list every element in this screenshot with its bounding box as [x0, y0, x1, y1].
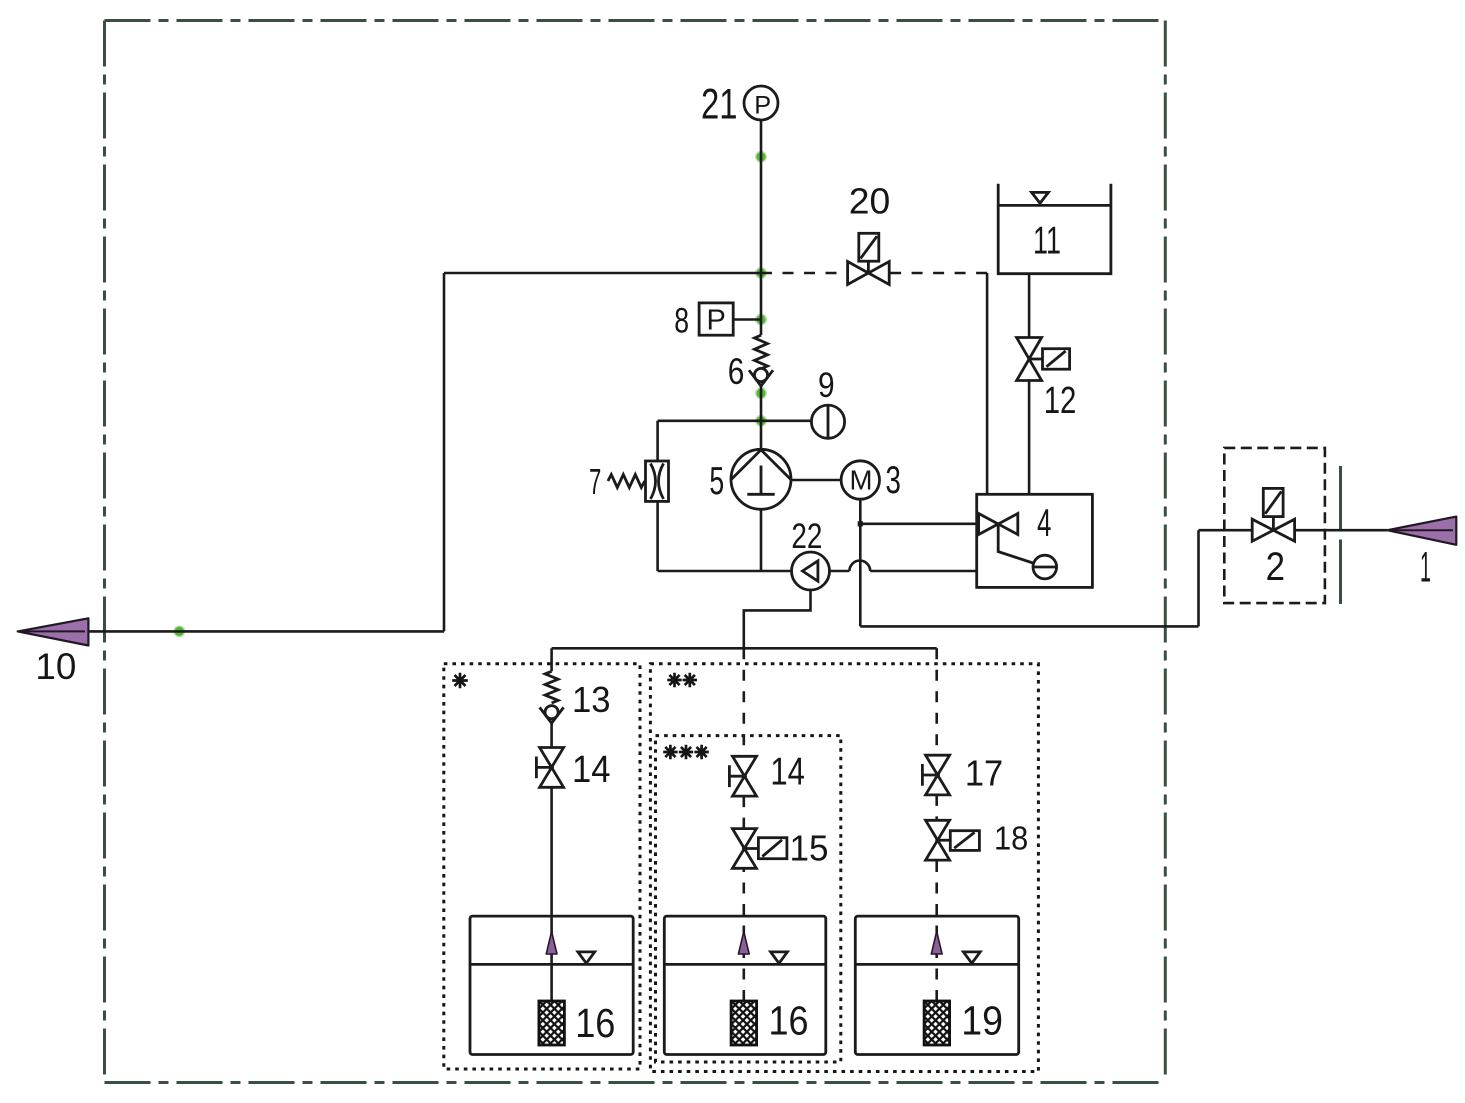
svg-text:19: 19: [961, 997, 1003, 1043]
svg-text:1: 1: [1420, 544, 1431, 591]
svg-text:7: 7: [589, 462, 601, 502]
svg-text:3: 3: [886, 459, 901, 502]
svg-text:16: 16: [769, 997, 809, 1043]
svg-text:15: 15: [790, 829, 829, 869]
svg-text:P: P: [707, 305, 726, 337]
svg-text:5: 5: [709, 460, 724, 503]
svg-text:6: 6: [728, 350, 745, 392]
svg-text:12: 12: [1044, 379, 1077, 421]
svg-text:11: 11: [1033, 220, 1061, 263]
svg-text:16: 16: [575, 1000, 615, 1046]
svg-text:10: 10: [35, 646, 76, 687]
svg-text:22: 22: [791, 516, 822, 556]
svg-text:P: P: [754, 91, 771, 119]
svg-text:2: 2: [1266, 545, 1285, 589]
svg-text:9: 9: [818, 366, 835, 405]
svg-text:4: 4: [1037, 502, 1051, 545]
svg-text:17: 17: [965, 753, 1003, 794]
svg-text:20: 20: [849, 180, 891, 221]
svg-text:M: M: [850, 465, 873, 496]
svg-text:8: 8: [674, 301, 689, 340]
svg-text:21: 21: [701, 81, 738, 129]
svg-text:13: 13: [572, 679, 611, 720]
svg-text:18: 18: [994, 821, 1028, 858]
svg-text:14: 14: [572, 749, 611, 791]
svg-text:14: 14: [770, 750, 805, 793]
